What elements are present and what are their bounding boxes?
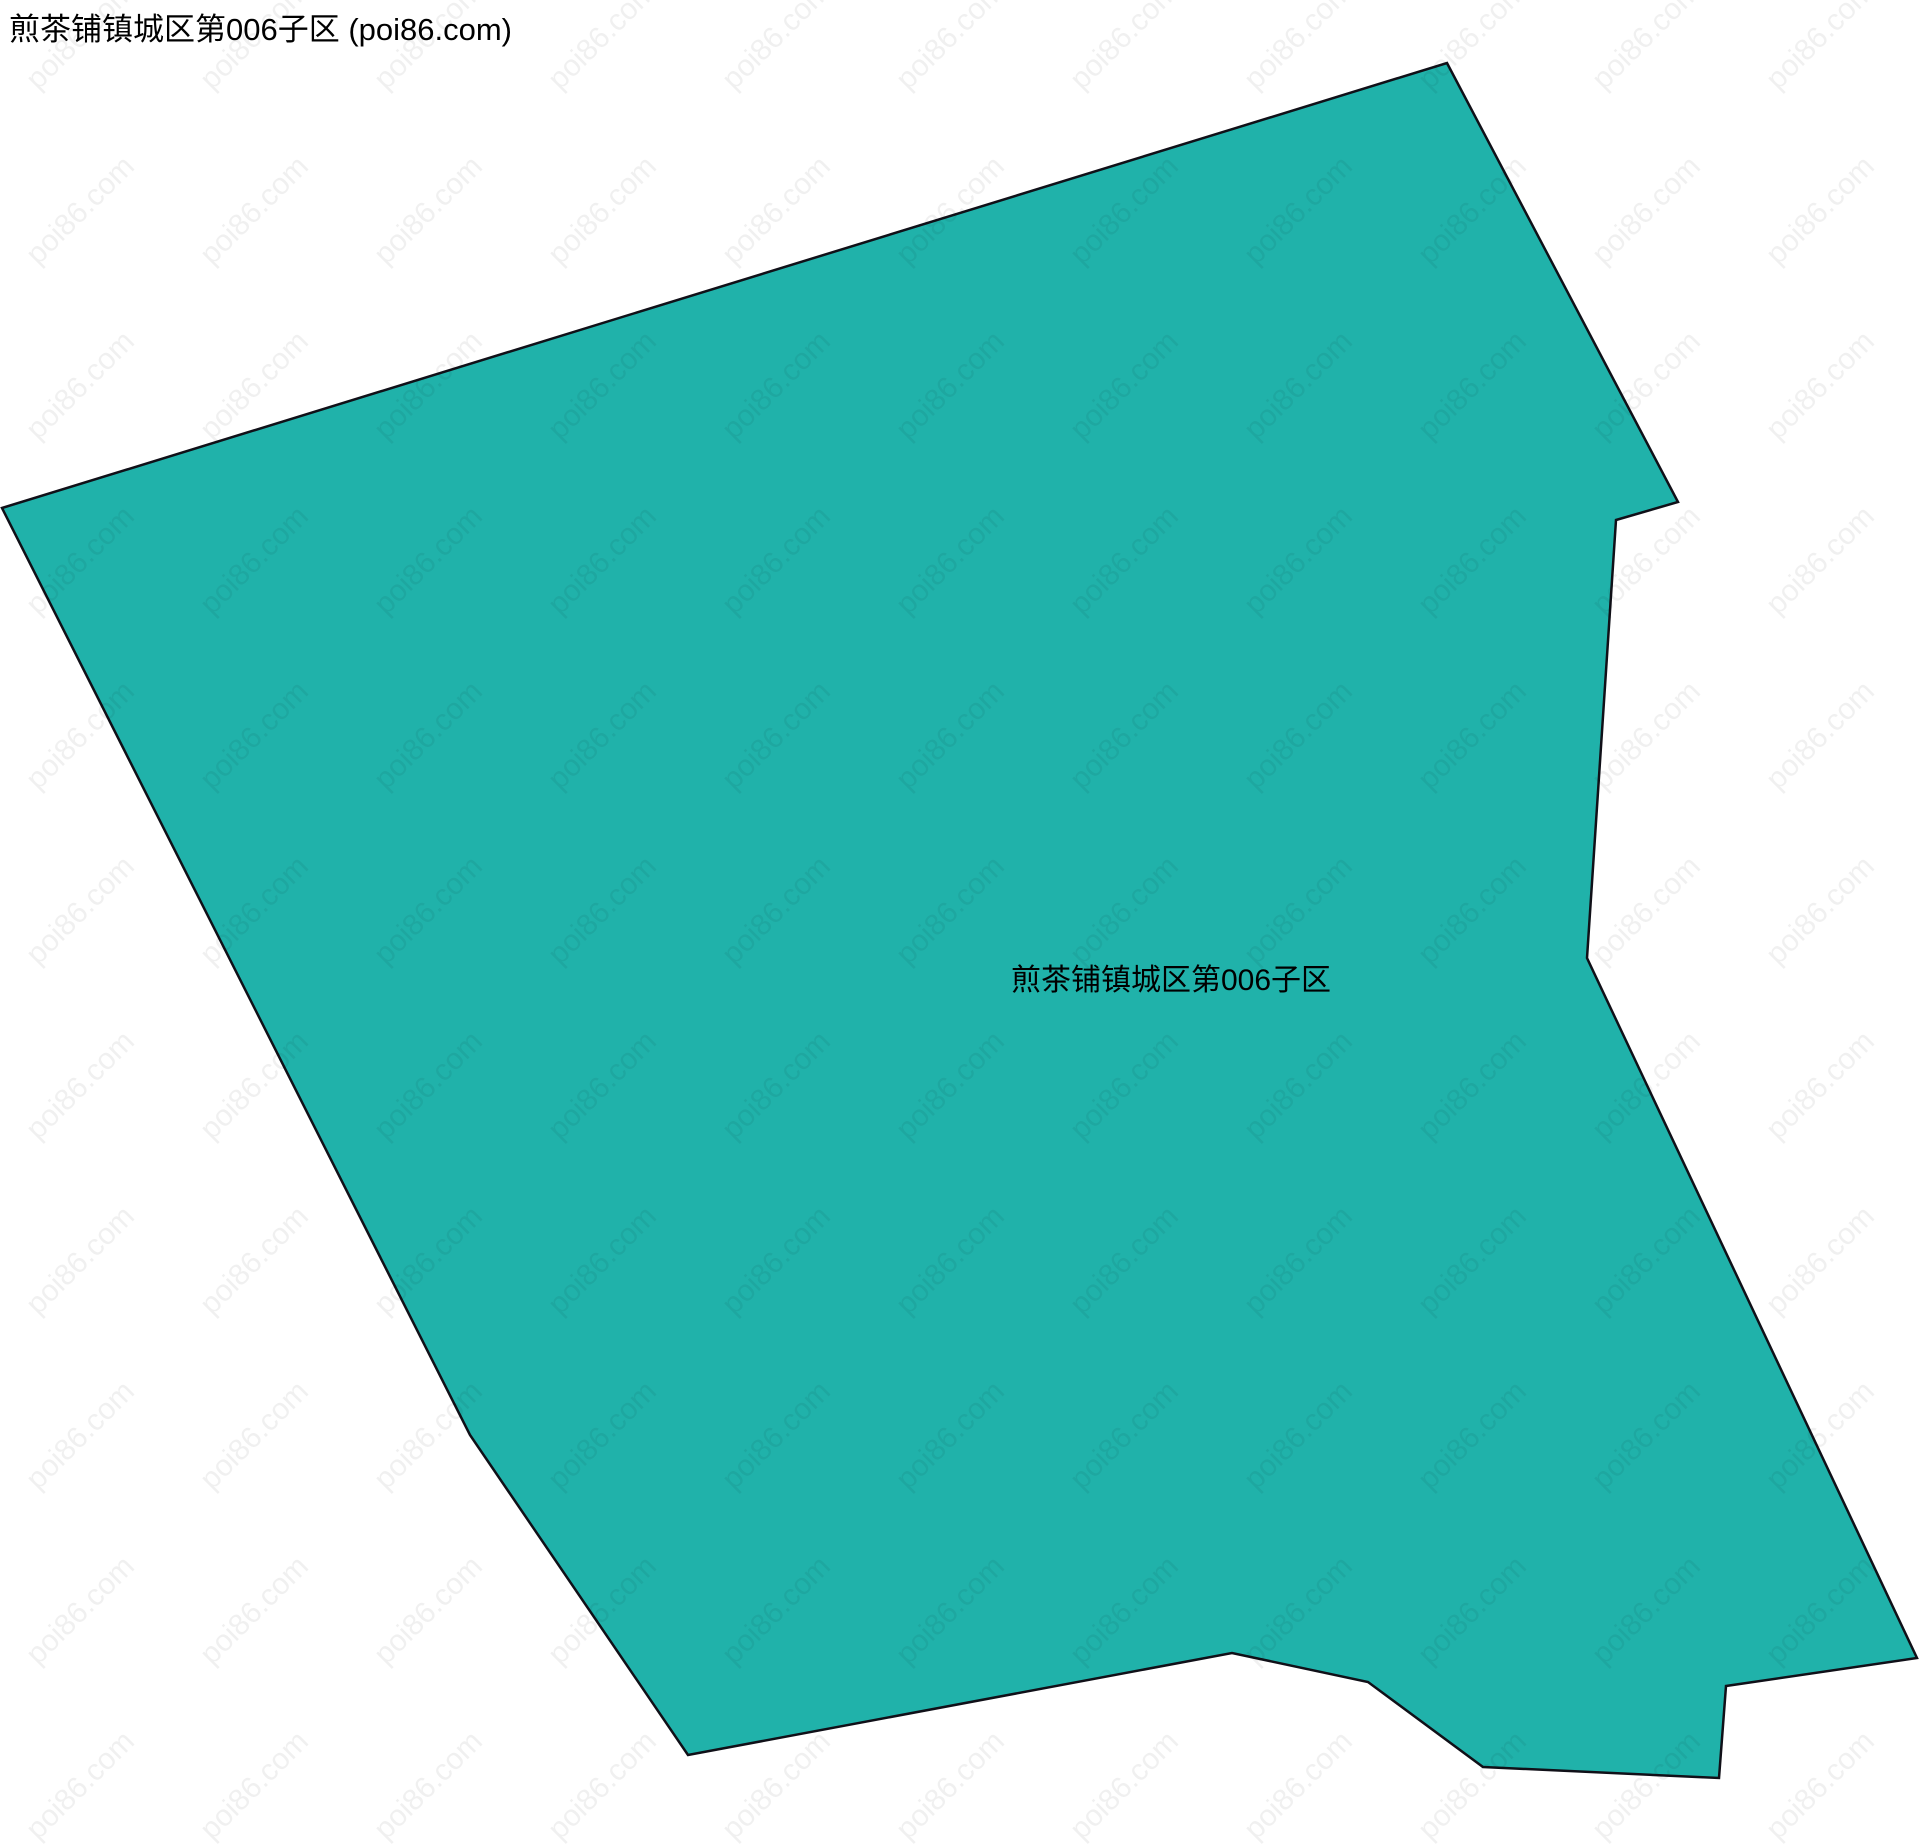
watermark-text: poi86.com	[20, 850, 141, 971]
watermark-text: poi86.com	[542, 150, 663, 271]
watermark-text: poi86.com	[368, 1550, 489, 1671]
watermark-text: poi86.com	[20, 150, 141, 271]
map-canvas: poi86.compoi86.compoi86.compoi86.compoi8…	[0, 0, 1920, 1846]
watermark-text: poi86.com	[1760, 1725, 1881, 1846]
watermark-text: poi86.com	[1760, 675, 1881, 796]
watermark-text: poi86.com	[1064, 1725, 1185, 1846]
watermark-text: poi86.com	[20, 1025, 141, 1146]
watermark-text: poi86.com	[20, 1550, 141, 1671]
watermark-text: poi86.com	[890, 0, 1011, 96]
watermark-text: poi86.com	[194, 1200, 315, 1321]
watermark-text: poi86.com	[20, 325, 141, 446]
region-map: poi86.compoi86.compoi86.compoi86.compoi8…	[0, 0, 1920, 1846]
watermark-text: poi86.com	[194, 1375, 315, 1496]
watermark-text: poi86.com	[1064, 0, 1185, 96]
watermark-text: poi86.com	[368, 1725, 489, 1846]
watermark-text: poi86.com	[1412, 0, 1533, 96]
watermark-text: poi86.com	[194, 1725, 315, 1846]
watermark-text: poi86.com	[20, 1375, 141, 1496]
watermark-text: poi86.com	[890, 1725, 1011, 1846]
watermark-text: poi86.com	[194, 150, 315, 271]
watermark-text: poi86.com	[1586, 150, 1707, 271]
region-label: 煎茶铺镇城区第006子区	[1011, 955, 1331, 999]
watermark-text: poi86.com	[1760, 500, 1881, 621]
page-title: 煎茶铺镇城区第006子区 (poi86.com)	[9, 12, 512, 48]
watermark-text: poi86.com	[20, 1725, 141, 1846]
watermark-text: poi86.com	[194, 1550, 315, 1671]
watermark-text: poi86.com	[1760, 850, 1881, 971]
watermark-text: poi86.com	[1586, 0, 1707, 96]
watermark-text: poi86.com	[368, 150, 489, 271]
watermark-text: poi86.com	[1238, 1725, 1359, 1846]
watermark-text: poi86.com	[1760, 0, 1881, 96]
watermark-text: poi86.com	[542, 0, 663, 96]
watermark-text: poi86.com	[1760, 1200, 1881, 1321]
watermark-text: poi86.com	[1760, 150, 1881, 271]
watermark-text: poi86.com	[1586, 850, 1707, 971]
watermark-text: poi86.com	[20, 1200, 141, 1321]
watermark-text: poi86.com	[716, 150, 837, 271]
watermark-text: poi86.com	[716, 0, 837, 96]
watermark-text: poi86.com	[1238, 0, 1359, 96]
watermark-text: poi86.com	[1760, 1025, 1881, 1146]
watermark-text: poi86.com	[1760, 325, 1881, 446]
watermark-text: poi86.com	[542, 1725, 663, 1846]
